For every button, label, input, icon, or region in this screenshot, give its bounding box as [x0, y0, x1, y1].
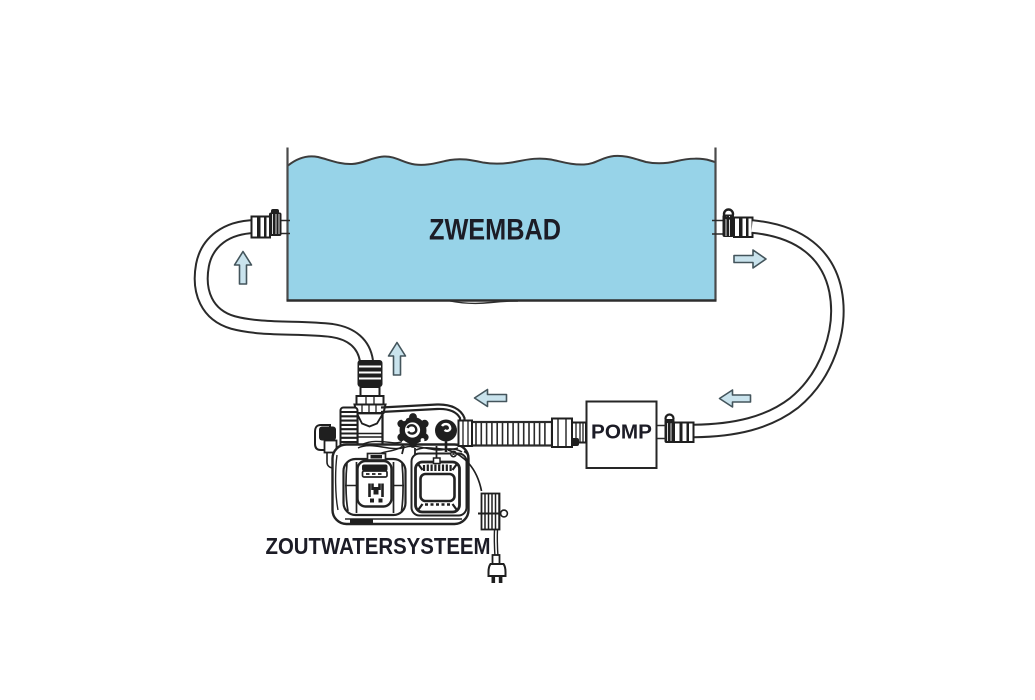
svg-text:ZWEMBAD: ZWEMBAD — [429, 214, 561, 247]
svg-text:POMP: POMP — [591, 422, 652, 444]
svg-text:ZOUTWATERSYSTEEM: ZOUTWATERSYSTEEM — [266, 533, 491, 559]
